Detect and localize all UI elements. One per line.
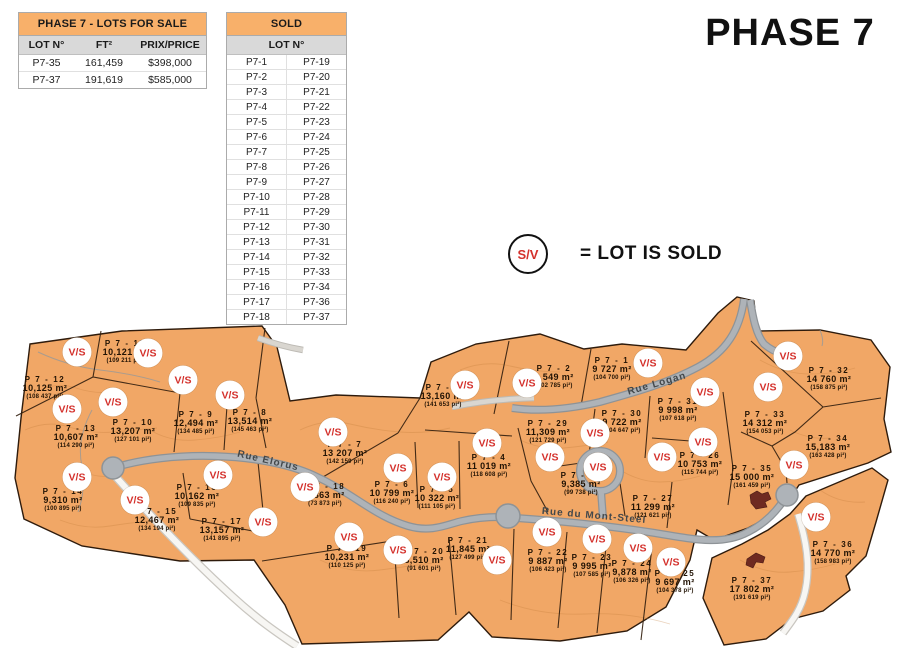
sold-badge: V/S [121, 486, 150, 515]
lot-label: P 7 - 239 995 m²(107 585 pi²) [572, 554, 613, 578]
sold-legend: S/V = LOT IS SOLD [508, 234, 722, 274]
table-row: P7-2P7-20 [227, 70, 346, 85]
lot-area-m2: 9 995 m² [572, 562, 613, 571]
lot-label: P 7 - 3314 312 m²(154 053 pi²) [743, 411, 788, 435]
sold-badge: V/S [533, 518, 562, 547]
lot-area-m2: 14 312 m² [743, 419, 788, 428]
cell: P7-25 [287, 145, 346, 159]
lot-area-m2: 14 760 m² [807, 375, 852, 384]
sold-badge: V/S [99, 388, 128, 417]
lot-area-m2: 11,309 m² [526, 428, 570, 437]
sold-badge: V/S [657, 548, 686, 577]
cell: P7-19 [287, 55, 346, 69]
lot-label: P 7 - 2911,309 m²(121 729 pi²) [526, 420, 570, 444]
cell: P7-26 [287, 160, 346, 174]
sold-badge: V/S [483, 546, 512, 575]
lot-area-pi2: (158 875 pi²) [807, 385, 852, 391]
sold-badge: V/S [584, 453, 613, 482]
lot-area-pi2: (154 053 pi²) [743, 429, 788, 435]
cell: P7-23 [287, 115, 346, 129]
sold-badge: V/S [583, 525, 612, 554]
sold-badge: V/S [536, 443, 565, 472]
table-row: P7-37191,619$585,000 [19, 72, 206, 88]
cell: P7-27 [287, 175, 346, 189]
lot-area-m2: 12,494 m² [174, 419, 219, 428]
lot-label: P 7 - 3717 802 m²(191 619 pi²) [730, 577, 775, 601]
cell: P7-17 [227, 295, 287, 309]
sold-badge: V/S [384, 536, 413, 565]
table-row: P7-18P7-37 [227, 310, 346, 324]
lot-label: P 7 - 319 998 m²(107 618 pi²) [658, 398, 699, 422]
cell: P7-3 [227, 85, 287, 99]
sold-legend-badge: S/V [508, 234, 548, 274]
sold-table-header: LOT N° [227, 36, 346, 55]
lot-area-pi2: (114 290 pi²) [54, 443, 99, 449]
lot-area-pi2: (134 194 pi²) [135, 526, 180, 532]
lot-area-m2: 13,157 m² [200, 526, 245, 535]
col-price: PRIX/PRICE [134, 36, 206, 54]
cell: P7-37 [19, 72, 74, 88]
sold-badge: V/S [134, 339, 163, 368]
page: { "page_title": "PHASE 7", "colors": { "… [0, 0, 900, 648]
cell: P7-22 [287, 100, 346, 114]
lot-area-pi2: (73 873 pi²) [305, 501, 346, 507]
sold-badge: V/S [384, 454, 413, 483]
cell: P7-33 [287, 265, 346, 279]
cell: P7-5 [227, 115, 287, 129]
lot-label: P 7 - 912,494 m²(134 485 pi²) [174, 411, 219, 435]
table-row: P7-10P7-28 [227, 190, 346, 205]
lot-area-m2: 9 998 m² [658, 406, 699, 415]
cell: P7-32 [287, 250, 346, 264]
lot-label: P 7 - 149,310 m²(100 895 pi²) [43, 488, 84, 512]
for-sale-table-header: LOT N° FT² PRIX/PRICE [19, 36, 206, 55]
table-row: P7-9P7-27 [227, 175, 346, 190]
table-row: P7-5P7-23 [227, 115, 346, 130]
for-sale-table: PHASE 7 - LOTS FOR SALE LOT N° FT² PRIX/… [18, 12, 207, 89]
lot-area-m2: 11 299 m² [631, 503, 675, 512]
cell: P7-35 [19, 55, 74, 71]
lot-area-pi2: (91 601 pi²) [404, 566, 445, 572]
table-row: P7-6P7-24 [227, 130, 346, 145]
lot-area-pi2: (110 125 pi²) [325, 563, 370, 569]
cell: P7-21 [287, 85, 346, 99]
lot-area-pi2: (121 621 pi²) [631, 513, 675, 519]
sold-badge: V/S [754, 373, 783, 402]
table-row: P7-12P7-30 [227, 220, 346, 235]
lot-area-m2: 13 207 m² [323, 449, 368, 458]
lot-area-m2: 9 887 m² [528, 557, 569, 566]
lot-area-m2: 10 322 m² [415, 494, 460, 503]
lot-area-pi2: (145 463 pi²) [228, 427, 273, 433]
table-row: P7-1P7-19 [227, 55, 346, 70]
lot-area-pi2: (142 159 pi²) [323, 459, 368, 465]
sold-badge: V/S [204, 461, 233, 490]
lot-label: P 7 - 813,514 m²(145 463 pi²) [228, 409, 273, 433]
sold-badge: V/S [319, 418, 348, 447]
page-title: PHASE 7 [700, 12, 880, 55]
cell: P7-31 [287, 235, 346, 249]
lot-area-pi2: (141 895 pi²) [200, 536, 245, 542]
sold-badge: V/S [624, 534, 653, 563]
col-lot-number: LOT N° [19, 36, 74, 54]
cell: P7-20 [287, 70, 346, 84]
cell: P7-7 [227, 145, 287, 159]
cell: P7-15 [227, 265, 287, 279]
sold-badge: V/S [802, 503, 831, 532]
lot-area-m2: 9 727 m² [592, 365, 631, 374]
cell: P7-13 [227, 235, 287, 249]
cell: P7-30 [287, 220, 346, 234]
cell: P7-36 [287, 295, 346, 309]
lot-area-m2: 10,162 m² [175, 492, 220, 501]
lot-area-pi2: (141 653 pi²) [421, 402, 466, 408]
cell: P7-24 [287, 130, 346, 144]
lot-area-m2: 9,878 m² [612, 568, 653, 577]
lot-label: P 7 - 610 799 m²(116 240 pi²) [370, 481, 415, 505]
lot-area-pi2: (115 744 pi²) [678, 470, 723, 476]
lot-area-pi2: (111 105 pi²) [415, 504, 460, 510]
table-row: P7-13P7-31 [227, 235, 346, 250]
cell: 161,459 [74, 55, 134, 71]
col-lot-number: LOT N° [227, 36, 346, 54]
lot-label: P 7 - 411 019 m²(118 608 pi²) [467, 454, 511, 478]
lot-area-pi2: (116 240 pi²) [370, 499, 415, 505]
lot-area-m2: 10,607 m² [54, 433, 99, 442]
sold-badge: V/S [634, 349, 663, 378]
for-sale-table-title: PHASE 7 - LOTS FOR SALE [19, 13, 206, 36]
lot-area-pi2: (161 459 pi²) [730, 483, 775, 489]
lot-area-m2: 13,207 m² [111, 427, 156, 436]
sold-badge: V/S [774, 342, 803, 371]
lot-area-m2: 14 770 m² [811, 549, 856, 558]
lot-area-m2: 10,125 m² [23, 384, 68, 393]
lot-area-pi2: (104 700 pi²) [592, 375, 631, 381]
table-row: P7-14P7-32 [227, 250, 346, 265]
table-row: P7-3P7-21 [227, 85, 346, 100]
sold-badge: V/S [473, 429, 502, 458]
cell: P7-34 [287, 280, 346, 294]
cell: P7-1 [227, 55, 287, 69]
lot-area-pi2: (107 585 pi²) [572, 572, 613, 578]
lot-area-m2: 9,310 m² [43, 496, 84, 505]
lot-label: P 7 - 3515 000 m²(161 459 pi²) [730, 465, 775, 489]
lot-area-pi2: (99 738 pi²) [561, 490, 602, 496]
cell: P7-4 [227, 100, 287, 114]
lot-area-m2: 10 753 m² [678, 460, 723, 469]
lot-area-m2: 9 697 m² [655, 578, 696, 587]
lot-area-m2: 15 000 m² [730, 473, 775, 482]
lot-area-m2: 12,467 m² [135, 516, 180, 525]
table-row: P7-16P7-34 [227, 280, 346, 295]
lot-area-pi2: (118 608 pi²) [467, 472, 511, 478]
lot-area-m2: 11 019 m² [467, 462, 511, 471]
sold-badge: V/S [689, 428, 718, 457]
sold-badge: V/S [428, 463, 457, 492]
lot-area-pi2: (158 983 pi²) [811, 559, 856, 565]
sold-badge: V/S [249, 508, 278, 537]
sold-badge: V/S [53, 395, 82, 424]
cell: P7-8 [227, 160, 287, 174]
cell: P7-2 [227, 70, 287, 84]
cell: P7-6 [227, 130, 287, 144]
lot-area-pi2: (191 619 pi²) [730, 595, 775, 601]
sold-badge: V/S [335, 523, 364, 552]
lot-area-m2: 9,385 m² [561, 480, 602, 489]
table-row: P7-17P7-36 [227, 295, 346, 310]
table-row: P7-11P7-29 [227, 205, 346, 220]
sold-badge: V/S [780, 451, 809, 480]
lot-label: P 7 - 2711 299 m²(121 621 pi²) [631, 495, 675, 519]
sold-legend-text: = LOT IS SOLD [580, 243, 722, 265]
lot-area-pi2: (104 378 pi²) [655, 588, 696, 594]
lot-area-m2: 10 799 m² [370, 489, 415, 498]
lot-area-pi2: (109 835 pi²) [175, 502, 220, 508]
table-row: P7-7P7-25 [227, 145, 346, 160]
sold-badge: V/S [451, 371, 480, 400]
lot-area-pi2: (127 101 pi²) [111, 437, 156, 443]
for-sale-rows: P7-35161,459$398,000P7-37191,619$585,000 [19, 55, 206, 88]
cell: P7-16 [227, 280, 287, 294]
col-ft2: FT² [74, 36, 134, 54]
sold-badge: V/S [581, 419, 610, 448]
lot-label: P 7 - 249,878 m²(106 326 pi²) [612, 560, 653, 584]
cell: P7-12 [227, 220, 287, 234]
sold-badge: V/S [648, 443, 677, 472]
lot-label: P 7 - 1310,607 m²(114 290 pi²) [54, 425, 99, 449]
sold-badge: V/S [513, 369, 542, 398]
sold-badge: V/S [291, 473, 320, 502]
sold-table: SOLD LOT N° P7-1P7-19P7-2P7-20P7-3P7-21P… [226, 12, 347, 325]
lot-area-pi2: (106 423 pi²) [528, 567, 569, 573]
cell: $398,000 [134, 55, 206, 71]
lot-label: P 7 - 1713,157 m²(141 895 pi²) [200, 518, 245, 542]
sold-rows: P7-1P7-19P7-2P7-20P7-3P7-21P7-4P7-22P7-5… [227, 55, 346, 324]
cell: P7-28 [287, 190, 346, 204]
lot-area-m2: 15,183 m² [806, 443, 851, 452]
lot-area-m2: 10,231 m² [325, 553, 370, 562]
table-row: P7-4P7-22 [227, 100, 346, 115]
cell: P7-37 [287, 310, 346, 324]
lot-area-m2: 13,514 m² [228, 417, 273, 426]
lot-label: P 7 - 3214 760 m²(158 875 pi²) [807, 367, 852, 391]
cell: P7-10 [227, 190, 287, 204]
sold-badge: V/S [691, 378, 720, 407]
lot-area-pi2: (163 428 pi²) [806, 453, 851, 459]
cell: P7-29 [287, 205, 346, 219]
cell: 191,619 [74, 72, 134, 88]
cell: P7-18 [227, 310, 287, 324]
cell: P7-11 [227, 205, 287, 219]
lot-label: P 7 - 3614 770 m²(158 983 pi²) [811, 541, 856, 565]
cell: $585,000 [134, 72, 206, 88]
sold-badge: V/S [169, 366, 198, 395]
sold-table-title: SOLD [227, 13, 346, 36]
lot-label: P 7 - 19 727 m²(104 700 pi²) [592, 357, 631, 381]
sold-badge: V/S [216, 381, 245, 410]
table-row: P7-35161,459$398,000 [19, 55, 206, 72]
lot-area-pi2: (134 485 pi²) [174, 429, 219, 435]
lot-label: P 7 - 229 887 m²(106 423 pi²) [528, 549, 569, 573]
lot-area-pi2: (106 326 pi²) [612, 578, 653, 584]
cell: P7-9 [227, 175, 287, 189]
sold-badge: V/S [63, 463, 92, 492]
lot-area-pi2: (100 895 pi²) [43, 506, 84, 512]
lot-label: P 7 - 1013,207 m²(127 101 pi²) [111, 419, 156, 443]
table-row: P7-15P7-33 [227, 265, 346, 280]
table-row: P7-8P7-26 [227, 160, 346, 175]
lot-area-m2: 17 802 m² [730, 585, 775, 594]
sold-badge: V/S [63, 338, 92, 367]
cell: P7-14 [227, 250, 287, 264]
lot-area-pi2: (107 618 pi²) [658, 416, 699, 422]
lot-label: P 7 - 3415,183 m²(163 428 pi²) [806, 435, 851, 459]
